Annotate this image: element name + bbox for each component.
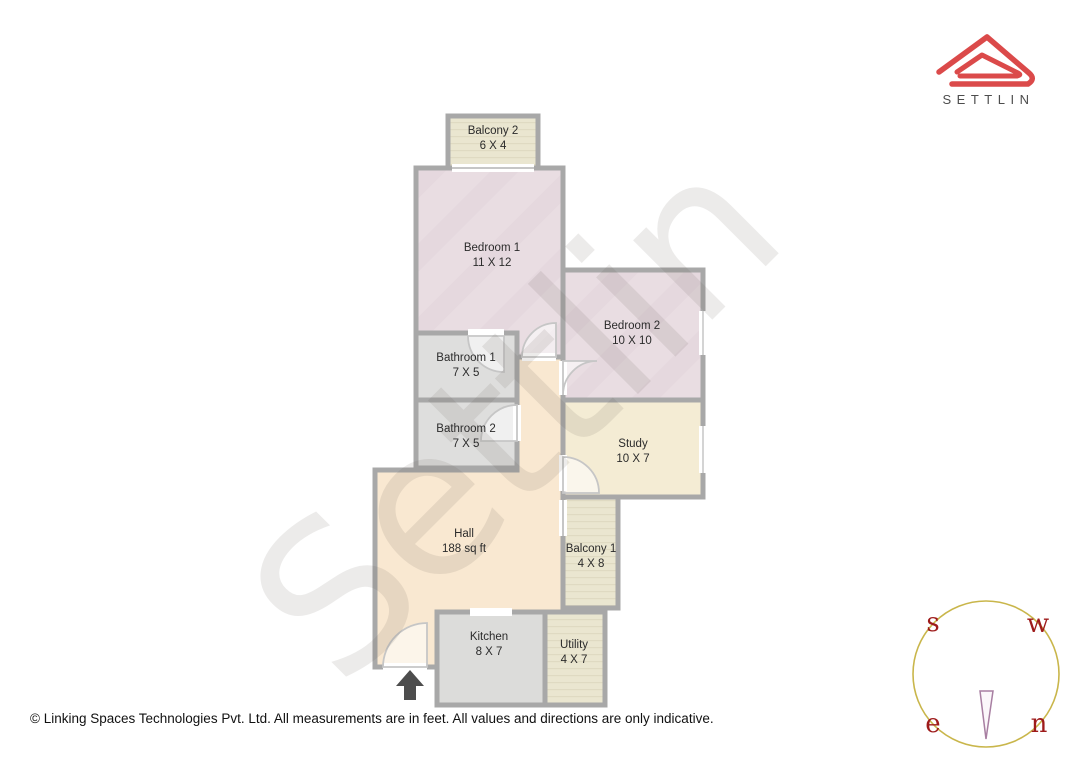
room-label-study: Study10 X 7 xyxy=(616,437,649,467)
compass-east-label: e xyxy=(925,709,940,739)
compass-needle-icon xyxy=(980,691,993,739)
room-label-bathroom2: Bathroom 27 X 5 xyxy=(436,422,495,452)
room-label-bedroom2: Bedroom 210 X 10 xyxy=(604,319,660,349)
compass: s w e n xyxy=(906,594,1066,754)
disclaimer-text: © Linking Spaces Technologies Pvt. Ltd. … xyxy=(30,711,714,726)
room-label-balcony1: Balcony 14 X 8 xyxy=(566,542,617,572)
entrance-arrow-icon xyxy=(396,670,424,700)
compass-west-label: w xyxy=(1027,609,1049,639)
room-label-utility: Utility4 X 7 xyxy=(560,638,588,668)
floor-plan-page: SETTLIN xyxy=(0,0,1080,764)
room-label-kitchen: Kitchen8 X 7 xyxy=(470,630,508,660)
room-label-hall: Hall188 sq ft xyxy=(442,527,486,557)
room-label-bathroom1: Bathroom 17 X 5 xyxy=(436,351,495,381)
room-label-balcony2: Balcony 26 X 4 xyxy=(468,124,519,154)
compass-south-label: s xyxy=(926,608,939,638)
room-label-bedroom1: Bedroom 111 X 12 xyxy=(464,241,520,271)
compass-north-label: n xyxy=(1031,709,1048,739)
